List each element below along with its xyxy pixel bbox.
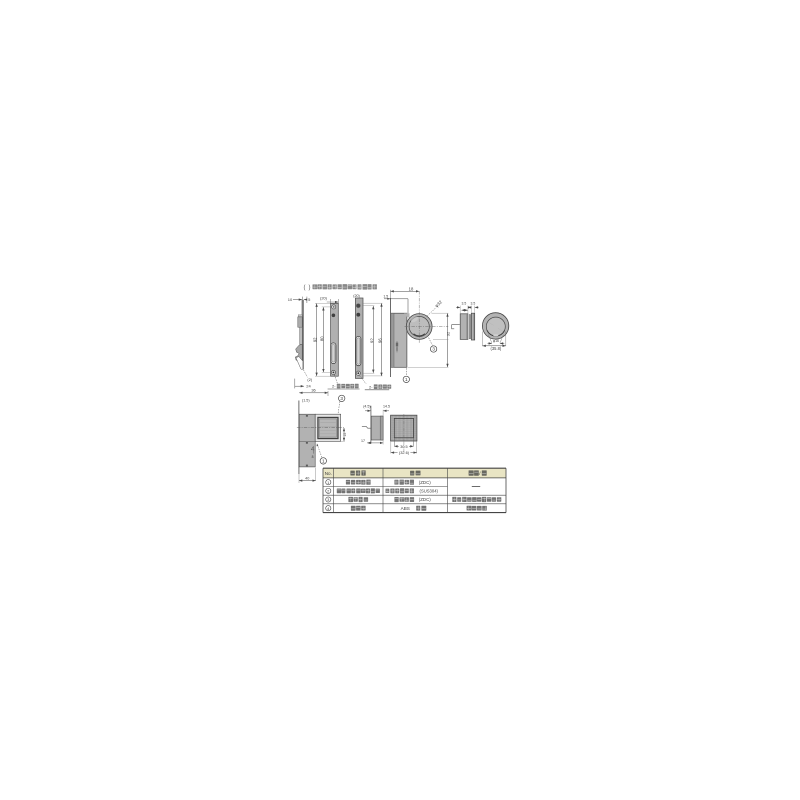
svg-text:φ16: φ16 — [493, 339, 499, 343]
svg-text:3: 3 — [432, 347, 435, 352]
svg-text:8: 8 — [312, 455, 314, 459]
svg-text:1: 1 — [322, 459, 325, 464]
svg-text:30.5: 30.5 — [400, 445, 407, 449]
svg-text:(4.5): (4.5) — [363, 405, 370, 409]
svg-text:3.5: 3.5 — [462, 301, 467, 305]
svg-text:(20): (20) — [353, 294, 360, 298]
svg-text:ABS: ABS — [401, 506, 410, 511]
svg-text:No.: No. — [325, 471, 332, 476]
svg-text:): ) — [309, 285, 311, 291]
svg-text:32: 32 — [446, 331, 451, 336]
svg-text:2-: 2- — [369, 384, 373, 389]
svg-text:3.5: 3.5 — [471, 301, 476, 305]
svg-text:17: 17 — [361, 439, 365, 443]
svg-text:(35.8): (35.8) — [491, 346, 502, 351]
svg-text:5: 5 — [308, 297, 311, 302]
svg-text:3: 3 — [340, 396, 343, 401]
svg-text:18: 18 — [409, 286, 414, 291]
svg-text:92: 92 — [369, 338, 374, 343]
svg-text:(2): (2) — [307, 377, 312, 382]
svg-text:40: 40 — [305, 476, 309, 480]
svg-text:80: 80 — [319, 336, 324, 341]
svg-text:(SUS304): (SUS304) — [420, 489, 439, 494]
svg-text:(32.6): (32.6) — [399, 450, 410, 455]
svg-text:(ZDC): (ZDC) — [419, 480, 431, 485]
svg-text:2-: 2- — [332, 384, 336, 389]
svg-text:1.5: 1.5 — [383, 294, 388, 298]
svg-text:(1.5): (1.5) — [302, 398, 310, 402]
svg-text:36: 36 — [311, 388, 315, 393]
svg-text:(20): (20) — [320, 296, 328, 301]
svg-text:(: ( — [304, 285, 306, 291]
svg-text:φ32: φ32 — [434, 299, 444, 308]
svg-text:1: 1 — [405, 377, 408, 382]
svg-text:(ZDC): (ZDC) — [419, 497, 431, 502]
svg-text:92: 92 — [313, 337, 318, 342]
svg-text:15: 15 — [343, 433, 347, 437]
svg-text:14.5: 14.5 — [383, 405, 390, 409]
svg-text:96: 96 — [378, 338, 383, 343]
svg-text:10: 10 — [288, 297, 293, 302]
